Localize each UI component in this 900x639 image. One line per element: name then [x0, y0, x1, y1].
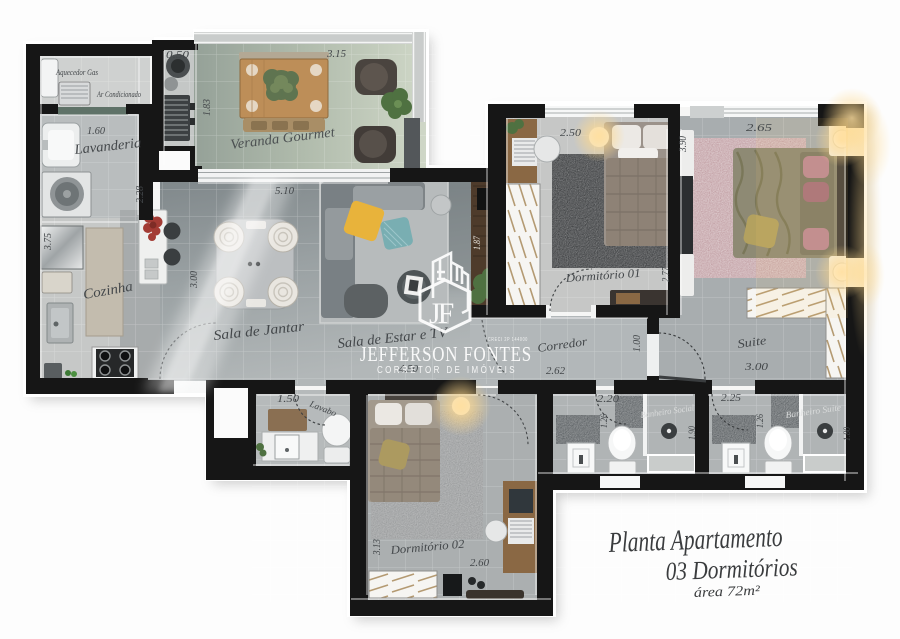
- svg-text:2.20: 2.20: [597, 394, 619, 405]
- svg-text:1.60: 1.60: [87, 125, 105, 137]
- svg-text:3.75: 3.75: [43, 233, 54, 251]
- svg-text:2.28: 2.28: [135, 186, 146, 203]
- svg-text:1.50: 1.50: [277, 394, 299, 405]
- svg-text:JEFFERSON FONTES: JEFFERSON FONTES: [360, 342, 532, 366]
- svg-text:03 Dormitórios: 03 Dormitórios: [665, 552, 798, 586]
- svg-text:2.77: 2.77: [661, 266, 672, 282]
- svg-text:2.25: 2.25: [721, 393, 741, 404]
- svg-text:1.80: 1.80: [842, 427, 852, 441]
- svg-text:1.87: 1.87: [472, 236, 482, 250]
- svg-text:0.50: 0.50: [166, 49, 190, 61]
- svg-text:2.65: 2.65: [746, 122, 773, 134]
- svg-text:3.00: 3.00: [189, 271, 200, 289]
- svg-text:3.90: 3.90: [678, 136, 689, 153]
- svg-text:1.26: 1.26: [755, 414, 765, 428]
- svg-text:1.83: 1.83: [202, 99, 213, 116]
- svg-text:2.60: 2.60: [470, 558, 489, 569]
- svg-text:CORRETOR DE IMÓVEIS: CORRETOR DE IMÓVEIS: [377, 363, 517, 376]
- svg-text:3.13: 3.13: [372, 539, 383, 556]
- svg-text:1.00: 1.00: [632, 335, 643, 352]
- svg-text:área 72m²: área 72m²: [694, 584, 761, 601]
- svg-text:1.26: 1.26: [599, 414, 609, 428]
- svg-text:3.15: 3.15: [326, 48, 346, 60]
- svg-text:Aquecedor Gas: Aquecedor Gas: [55, 68, 98, 77]
- svg-text:2.62: 2.62: [546, 366, 565, 377]
- svg-text:3.00: 3.00: [744, 362, 768, 373]
- svg-text:1.90: 1.90: [687, 426, 697, 440]
- svg-text:CRECI 2P 144000: CRECI 2P 144000: [488, 337, 528, 343]
- svg-text:Ar Condicionado: Ar Condicionado: [96, 90, 141, 99]
- svg-text:2.50: 2.50: [560, 127, 582, 139]
- svg-text:JF: JF: [429, 297, 454, 330]
- svg-text:5.10: 5.10: [275, 185, 294, 197]
